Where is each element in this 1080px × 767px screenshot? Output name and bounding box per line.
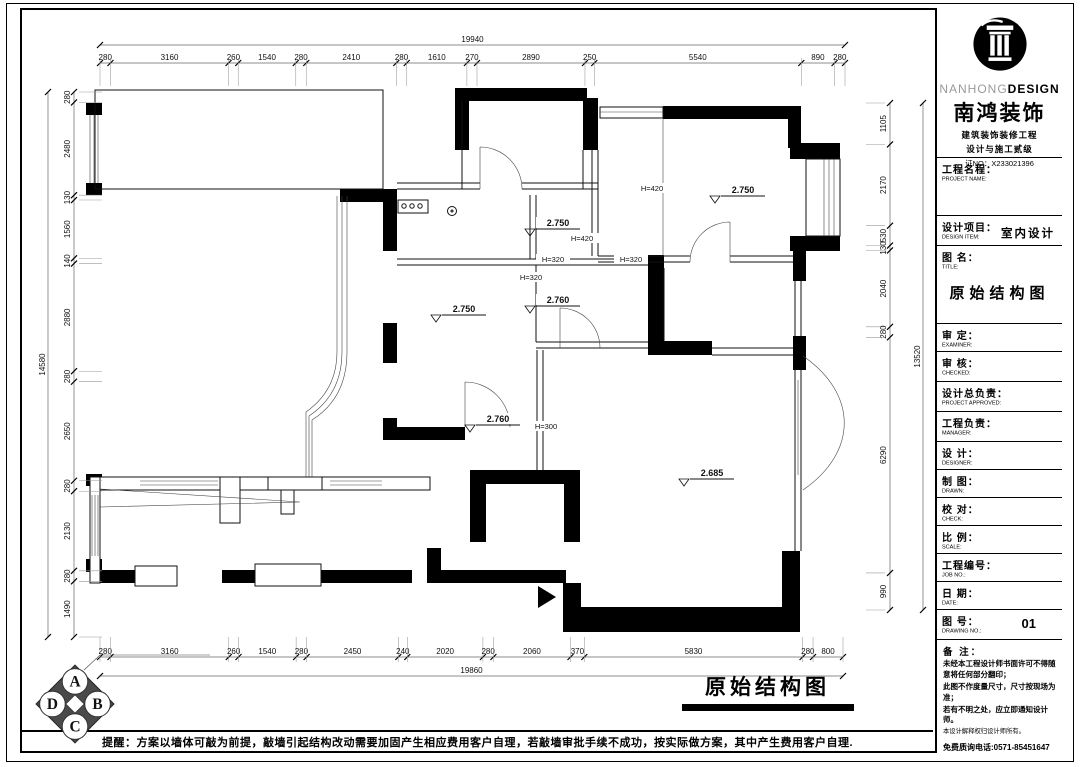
dimension-text: 530	[879, 228, 888, 242]
dimension-text: 1560	[63, 220, 72, 238]
titleblock-fields: 工程名程：PROJECT NAME:设计项目：DESIGN ITEM:室内设计图…	[937, 158, 1062, 640]
field-label-cn: 工程名程：	[942, 161, 1057, 176]
dimension-text: 2170	[879, 176, 888, 194]
field-label-en: PROJECT APPROVED:	[942, 400, 1040, 406]
height-label: H=320	[620, 255, 642, 264]
dimension-text: 280	[63, 569, 72, 583]
note-line: 此图不作度量尺寸，尺寸按现场为准；	[943, 682, 1056, 704]
level-symbol	[679, 479, 689, 486]
titleblock-field-2: 图 名：TITLE:原始结构图	[937, 246, 1062, 324]
nanhong-logo-icon	[969, 14, 1031, 76]
dimension-text: 990	[879, 584, 888, 598]
brand-cn: 南鸿装饰	[937, 97, 1062, 127]
exterior-walls	[86, 88, 840, 632]
field-label-cn: 审 核：	[942, 355, 1057, 370]
dimension-text: 250	[583, 53, 597, 62]
field-label-en: EXAMINER:	[942, 342, 1040, 348]
note-line: 未经本工程设计师书面许可不得随意将任何部分翻印；	[943, 659, 1056, 681]
notes-title: 备 注：	[943, 644, 1056, 658]
field-label-cn: 日 期：	[942, 585, 1057, 600]
titleblock-field-7: 设 计：DESIGNER:	[937, 442, 1062, 470]
dimension-text: 1490	[63, 600, 72, 618]
dimension-text: 19860	[460, 666, 483, 675]
field-label-en: PROJECT NAME:	[942, 176, 1040, 182]
field-label-cn: 图 号：	[942, 613, 1057, 628]
level-label: 2.750	[547, 218, 570, 228]
level-symbol	[710, 196, 720, 203]
dimension-text: 2040	[879, 279, 888, 297]
brand-en: NANHONGDESIGN	[937, 82, 1062, 96]
field-label-en: SCALE:	[942, 544, 1040, 550]
dimension-text: 2060	[523, 647, 541, 656]
height-label: H=420	[641, 184, 663, 193]
corner-diamond-symbol: A B C D	[34, 663, 116, 745]
entry-door-marker	[538, 586, 556, 608]
dimension-text: 800	[821, 647, 835, 656]
field-label-cn: 工程编号：	[942, 557, 1057, 572]
kitchen-fixtures	[398, 200, 457, 216]
titleblock-field-8: 制 图：DRAWN:	[937, 470, 1062, 498]
dimension-text: 140	[63, 254, 72, 268]
field-label-en: MANAGER:	[942, 430, 1040, 436]
dimension-text: 1105	[879, 115, 888, 133]
dimension-text: 280	[63, 369, 72, 383]
field-label-en: CHECKED:	[942, 370, 1040, 376]
dimension-text: 2650	[63, 422, 72, 440]
dimension-text: 130	[63, 190, 72, 204]
field-label-cn: 制 图：	[942, 473, 1057, 488]
brand-section: NANHONGDESIGN 南鸿装饰 建筑装饰装修工程 设计与施工贰级 证NO：…	[937, 8, 1062, 158]
dimension-text: 280	[879, 325, 888, 339]
dimension-text: 1540	[258, 647, 276, 656]
field-value-1: 室内设计	[1001, 225, 1055, 241]
height-label: H=320	[520, 273, 542, 282]
brand-en-bold: DESIGN	[1008, 82, 1060, 96]
floor-plan-canvas: 1994028031602601540280241028016102702890…	[0, 0, 1080, 767]
titleblock-field-10: 比 例：SCALE:	[937, 526, 1062, 554]
drawing-sheet: 1994028031602601540280241028016102702890…	[0, 0, 1080, 767]
drawing-caption-text: 原始结构图	[655, 671, 880, 701]
corner-letter-d: D	[47, 696, 58, 713]
brand-subline-1: 建筑装饰装修工程	[937, 129, 1062, 141]
level-symbol	[465, 425, 475, 432]
title-block: NANHONGDESIGN 南鸿装饰 建筑装饰装修工程 设计与施工贰级 证NO：…	[935, 8, 1062, 753]
field-label-cn: 审 定：	[942, 327, 1057, 342]
level-label: 2.750	[453, 304, 476, 314]
titleblock-field-3: 审 定：EXAMINER:	[937, 324, 1062, 352]
field-label-en: DESIGNER:	[942, 460, 1040, 466]
dimension-text: 260	[227, 53, 241, 62]
titleblock-field-1: 设计项目：DESIGN ITEM:室内设计	[937, 216, 1062, 246]
dimension-text: 370	[571, 647, 585, 656]
titleblock-field-4: 审 核：CHECKED:	[937, 352, 1062, 382]
dimension-text: 2130	[63, 522, 72, 540]
field-label-cn: 工程负责：	[942, 415, 1057, 430]
level-label: 2.760	[487, 414, 510, 424]
height-label: H=300	[535, 422, 557, 431]
field-label-cn: 图 名：	[942, 249, 1057, 264]
field-label-en: TITLE:	[942, 264, 1040, 270]
dimension-text: 130	[879, 241, 888, 255]
level-label: 2.760	[547, 295, 570, 305]
field-value-13: 01	[1022, 616, 1036, 631]
bottom-reminder-text: 提醒：方案以墙体可敲为前提，敲墙引起结构改动需要加固产生相应费用客户自理，若敲墙…	[102, 734, 853, 750]
titleblock-field-9: 校 对：CHECK:	[937, 498, 1062, 526]
titleblock-field-11: 工程编号：JOB NO.:	[937, 554, 1062, 582]
dimension-text: 2890	[522, 53, 540, 62]
field-label-en: DATE:	[942, 600, 1040, 606]
level-label: 2.685	[701, 468, 724, 478]
field-label-en: JOB NO.:	[942, 572, 1040, 578]
note-line-small: 本设计解释权归设计师所有。	[943, 727, 1056, 736]
dimension-text: 2480	[63, 139, 72, 157]
dimension-text: 2410	[342, 53, 360, 62]
drawing-caption: 原始结构图	[655, 671, 880, 711]
note-line: 若有不明之处，应立即通知设计师。	[943, 705, 1056, 727]
contact-phone: 免费质询电话:0571-85451647	[943, 742, 1056, 753]
titleblock-field-5: 设计总负责：PROJECT APPROVED:	[937, 382, 1062, 412]
dimension-text: 280	[63, 479, 72, 493]
field-label-en: CHECK:	[942, 516, 1040, 522]
field-label-cn: 比 例：	[942, 529, 1057, 544]
dimension-text: 5830	[685, 647, 703, 656]
titleblock-field-6: 工程负责：MANAGER:	[937, 412, 1062, 442]
dimension-text: 1610	[428, 53, 446, 62]
height-label: H=320	[542, 255, 564, 264]
corner-letter-b: B	[92, 696, 102, 713]
dimension-text: 2880	[63, 308, 72, 326]
dimension-text: 3160	[161, 647, 179, 656]
titleblock-field-13: 图 号：DRAWING NO.:01	[937, 610, 1062, 640]
dimension-text: 14580	[38, 353, 47, 376]
level-symbol	[431, 315, 441, 322]
level-label: 2.750	[732, 185, 755, 195]
field-value-2: 原始结构图	[937, 282, 1062, 303]
field-label-cn: 设计总负责：	[942, 385, 1057, 400]
brand-en-light: NANHONG	[939, 82, 1007, 96]
titleblock-field-0: 工程名程：PROJECT NAME:	[937, 158, 1062, 216]
dimension-text: 6290	[879, 446, 888, 464]
field-label-cn: 设 计：	[942, 445, 1057, 460]
dimension-text: 890	[811, 53, 825, 62]
dimension-text: 280	[63, 90, 72, 104]
corner-letter-a: A	[69, 674, 80, 691]
dimension-text: 3160	[161, 53, 179, 62]
brand-subline-2: 设计与施工贰级	[937, 143, 1062, 155]
field-label-cn: 校 对：	[942, 501, 1057, 516]
level-symbol	[525, 306, 535, 313]
dimension-text: 1540	[258, 53, 276, 62]
dimension-text: 240	[396, 647, 410, 656]
height-label: H=420	[571, 234, 593, 243]
titleblock-notes: 备 注： 未经本工程设计师书面许可不得随意将任何部分翻印； 此图不作度量尺寸，尺…	[937, 640, 1062, 757]
dimension-text: 19940	[461, 35, 484, 44]
corner-letter-c: C	[69, 719, 80, 736]
titleblock-field-12: 日 期：DATE:	[937, 582, 1062, 610]
dimension-text: 13520	[913, 345, 922, 368]
dimension-text: 2020	[436, 647, 454, 656]
bottom-reminder-strip: 提醒：方案以墙体可敲为前提，敲墙引起结构改动需要加固产生相应费用客户自理，若敲墙…	[22, 730, 933, 753]
dimension-text: 5540	[689, 53, 707, 62]
caption-underline-bar	[682, 704, 854, 711]
field-label-en: DRAWN:	[942, 488, 1040, 494]
dimension-text: 2450	[344, 647, 362, 656]
